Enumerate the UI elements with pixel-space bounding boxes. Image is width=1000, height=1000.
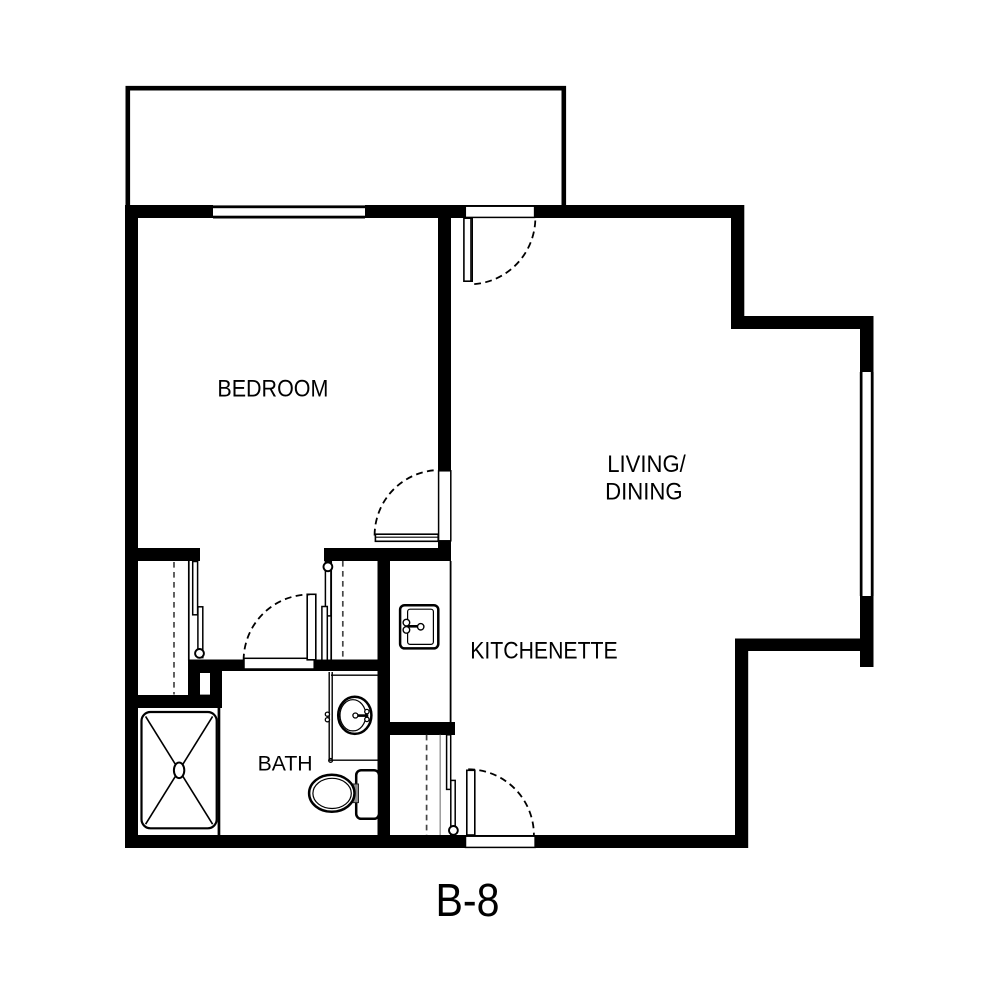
svg-text:B-8: B-8 [436, 874, 500, 926]
svg-text:LIVING/: LIVING/ [607, 452, 686, 478]
svg-text:BATH: BATH [258, 751, 313, 775]
svg-text:BEDROOM: BEDROOM [217, 376, 328, 402]
svg-text:DINING: DINING [605, 480, 683, 506]
svg-text:KITCHENETTE: KITCHENETTE [470, 639, 618, 665]
